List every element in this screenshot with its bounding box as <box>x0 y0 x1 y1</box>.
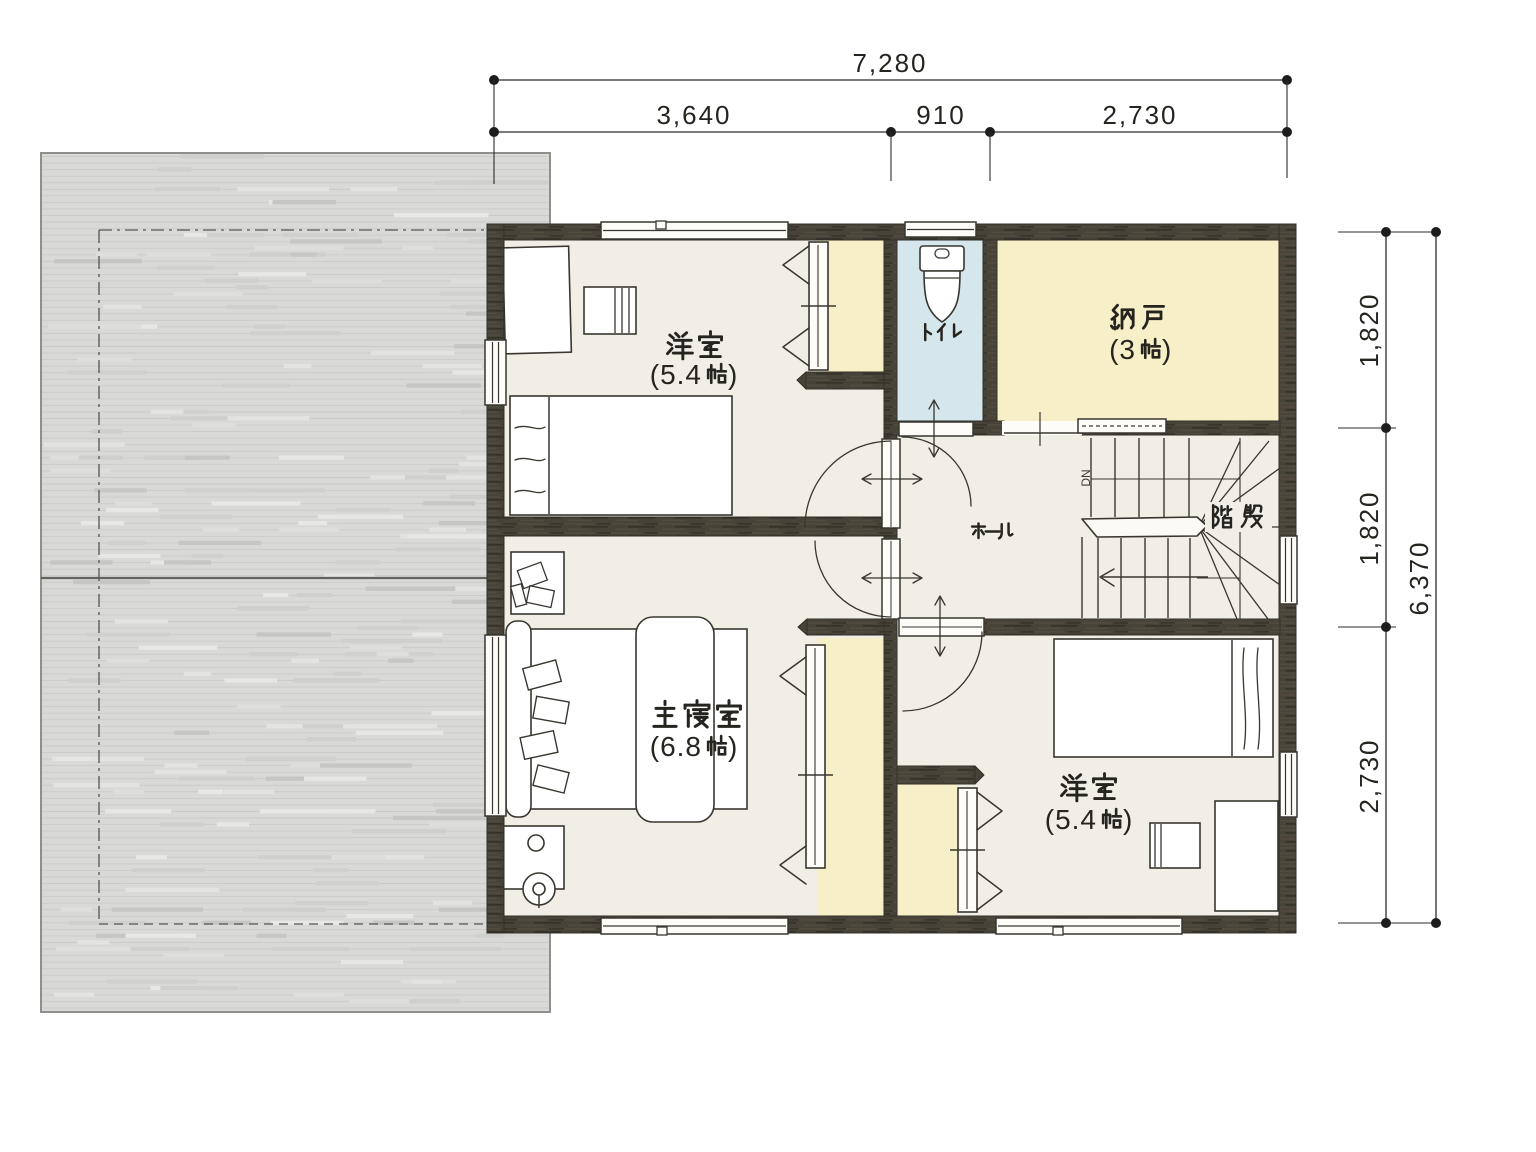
svg-text:1,820: 1,820 <box>1354 292 1384 367</box>
svg-text:7,280: 7,280 <box>852 48 927 78</box>
svg-text:6,370: 6,370 <box>1404 540 1434 615</box>
svg-text:): ) <box>728 731 737 762</box>
svg-text:2,730: 2,730 <box>1102 100 1177 130</box>
svg-text:(5.4: (5.4 <box>650 359 702 390</box>
svg-text:(3: (3 <box>1109 334 1136 365</box>
svg-text:DN: DN <box>1079 469 1093 486</box>
svg-text:910: 910 <box>916 100 965 130</box>
svg-text:): ) <box>1123 804 1132 835</box>
svg-text:(5.4: (5.4 <box>1045 804 1097 835</box>
svg-text:): ) <box>728 359 737 390</box>
svg-text:): ) <box>1162 334 1171 365</box>
svg-text:(6.8: (6.8 <box>650 731 702 762</box>
svg-text:3,640: 3,640 <box>656 100 731 130</box>
svg-text:1,820: 1,820 <box>1354 490 1384 565</box>
svg-text:2,730: 2,730 <box>1354 738 1384 813</box>
